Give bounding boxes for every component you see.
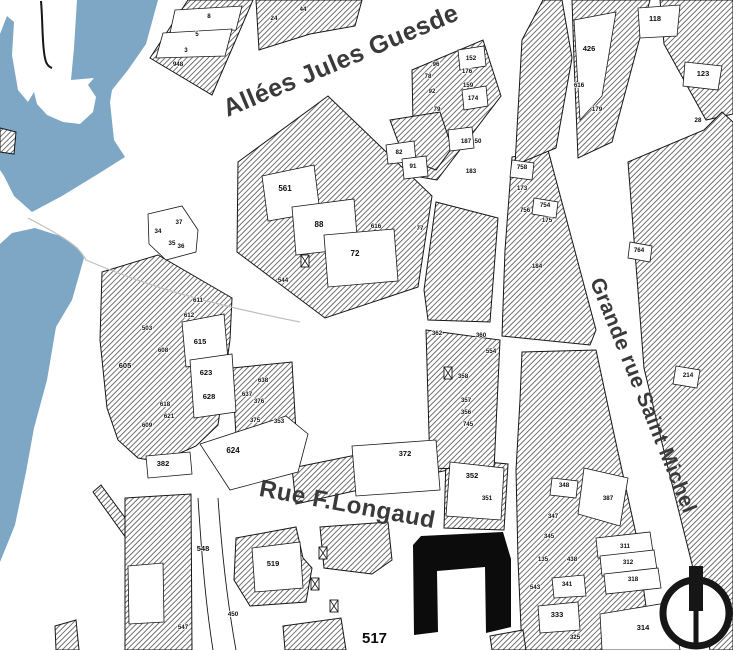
parcel-number-618: 618 (160, 401, 171, 408)
parcel-number-325: 325 (570, 634, 581, 641)
parcel-number-333: 333 (551, 610, 564, 619)
parcel-number-96: 96 (433, 61, 440, 68)
crossed-building-marker (319, 547, 327, 559)
parcel-number-28: 28 (695, 117, 702, 124)
parcel-number-341: 341 (562, 581, 573, 588)
parcel-number-756: 756 (520, 207, 531, 214)
parcel-number-5: 5 (195, 31, 199, 38)
parcel-number-311: 311 (620, 543, 631, 550)
parcel-number-44: 44 (300, 6, 307, 13)
parcel-number-348: 348 (559, 482, 570, 489)
parcel-number-78: 78 (425, 73, 432, 80)
parcel-number-554: 554 (486, 348, 497, 355)
river-shape (0, 228, 84, 562)
parcel-number-544: 544 (278, 277, 289, 284)
parcel-number-376: 376 (254, 398, 265, 405)
parcel-number-183: 183 (466, 168, 477, 175)
parcel-number-745: 745 (463, 421, 474, 428)
parcel-number-312: 312 (623, 559, 634, 566)
parcel-number-353: 353 (274, 418, 285, 425)
hatched-block (55, 620, 79, 650)
parcel-number-3: 3 (184, 47, 188, 54)
parcel-number-543: 543 (530, 584, 541, 591)
parcel-number-605: 605 (119, 361, 132, 370)
highlighted-building (413, 532, 511, 635)
parcel-number-352: 352 (466, 471, 479, 480)
parcel-number-362: 362 (432, 330, 443, 337)
parcel-lot (156, 29, 232, 58)
parcel-lot (128, 563, 164, 624)
parcel-number-50: 50 (475, 138, 482, 145)
hatched-block (515, 0, 572, 165)
parcel-number-608: 608 (158, 347, 169, 354)
parcel-number-72: 72 (351, 249, 360, 258)
parcel-number-184: 184 (532, 263, 543, 270)
hatched-block (0, 128, 16, 154)
parcel-number-174: 174 (468, 95, 479, 102)
hatched-block (320, 522, 392, 574)
parcel-lot (352, 440, 440, 496)
parcel-number-318: 318 (628, 576, 639, 583)
parcel-number-79: 79 (434, 106, 441, 113)
parcel-number-764: 764 (634, 247, 645, 254)
parcel-number-88: 88 (315, 220, 324, 229)
parcel-number-175: 175 (542, 217, 553, 224)
parcel-number-36: 36 (178, 243, 185, 250)
parcel-number-123: 123 (697, 69, 710, 78)
hatched-block (490, 630, 526, 650)
parcel-number-187: 187 (461, 138, 472, 145)
parcel-number-179: 179 (592, 106, 603, 113)
parcel-number-35: 35 (169, 240, 176, 247)
crossed-building-marker (444, 367, 452, 379)
parcel-number-628: 628 (203, 392, 216, 401)
crossed-building-marker (311, 578, 319, 590)
parcel-number-426: 426 (583, 44, 596, 53)
parcel-number-82: 82 (396, 149, 403, 156)
highlighted-building-footprint (413, 532, 511, 635)
hatched-block (502, 150, 596, 345)
parcel-lot (190, 354, 236, 418)
parcel-number-314: 314 (637, 623, 650, 632)
parcel-number-347: 347 (548, 513, 559, 520)
parcel-number-351: 351 (482, 495, 493, 502)
parcel-number-612: 612 (184, 312, 195, 319)
parcel-number-382: 382 (157, 459, 170, 468)
parcel-number-754: 754 (540, 202, 551, 209)
parcel-number-356: 356 (461, 409, 472, 416)
parcel-number-8: 8 (207, 13, 211, 20)
parcel-number-623: 623 (200, 368, 213, 377)
parcel-number-547: 547 (178, 624, 189, 631)
parcel-number-948: 948 (173, 61, 184, 68)
parcel-number-173: 173 (517, 185, 528, 192)
map-line (41, 1, 52, 68)
parcel-number-357: 357 (461, 397, 472, 404)
parcel-number-638: 638 (258, 377, 269, 384)
parcel-number-372: 372 (399, 449, 412, 458)
parcel-number-214: 214 (683, 372, 694, 379)
parcel-number-375: 375 (250, 417, 261, 424)
parcel-number-91: 91 (410, 163, 417, 170)
map-line (218, 498, 236, 650)
map-line (198, 498, 213, 650)
parcel-number-621: 621 (164, 413, 175, 420)
hatched-block (283, 618, 346, 650)
parcel-number-159: 159 (463, 82, 474, 89)
parcel-number-450: 450 (228, 611, 239, 618)
parcel-number-92: 92 (429, 88, 436, 95)
crossed-building-marker (301, 255, 309, 267)
parcel-number-360: 360 (476, 332, 487, 339)
river-shape (0, 0, 158, 212)
parcel-number-503: 503 (142, 325, 153, 332)
parcel-number-548: 548 (197, 544, 210, 553)
parcel-number-611: 611 (193, 297, 204, 304)
parcel-number-561: 561 (278, 184, 292, 193)
parcel-number-609: 609 (142, 422, 153, 429)
crossed-building-marker (330, 600, 338, 612)
parcel-number-616: 616 (371, 223, 382, 230)
parcel-number-24: 24 (271, 15, 278, 22)
parcel-number-37: 37 (176, 219, 183, 226)
parcel-number-345: 345 (544, 533, 555, 540)
parcel-label-517: 517 (362, 630, 387, 647)
parcel-number-438: 438 (567, 556, 578, 563)
parcel-number-519: 519 (267, 559, 280, 568)
parcel-number-152: 152 (466, 55, 477, 62)
parcel-number-758: 758 (517, 164, 528, 171)
parcel-number-387: 387 (603, 495, 614, 502)
parcel-number-77: 77 (417, 225, 424, 232)
parcel-number-118: 118 (649, 14, 661, 23)
cadastral-map: 8539482444118426123616179289615278176921… (0, 0, 733, 650)
cadastral-map-canvas: 8539482444118426123616179289615278176921… (0, 0, 733, 650)
parcel-lot (324, 229, 398, 287)
hatched-block (424, 202, 498, 322)
parcel-number-615: 615 (194, 337, 207, 346)
parcel-number-135: 135 (538, 556, 549, 563)
parcel-number-624: 624 (226, 446, 240, 455)
parcel-number-34: 34 (155, 228, 162, 235)
parcel-number-358: 358 (458, 373, 469, 380)
parcel-number-616: 616 (574, 82, 585, 89)
parcel-number-176: 176 (462, 68, 473, 75)
parcel-number-637: 637 (242, 391, 253, 398)
